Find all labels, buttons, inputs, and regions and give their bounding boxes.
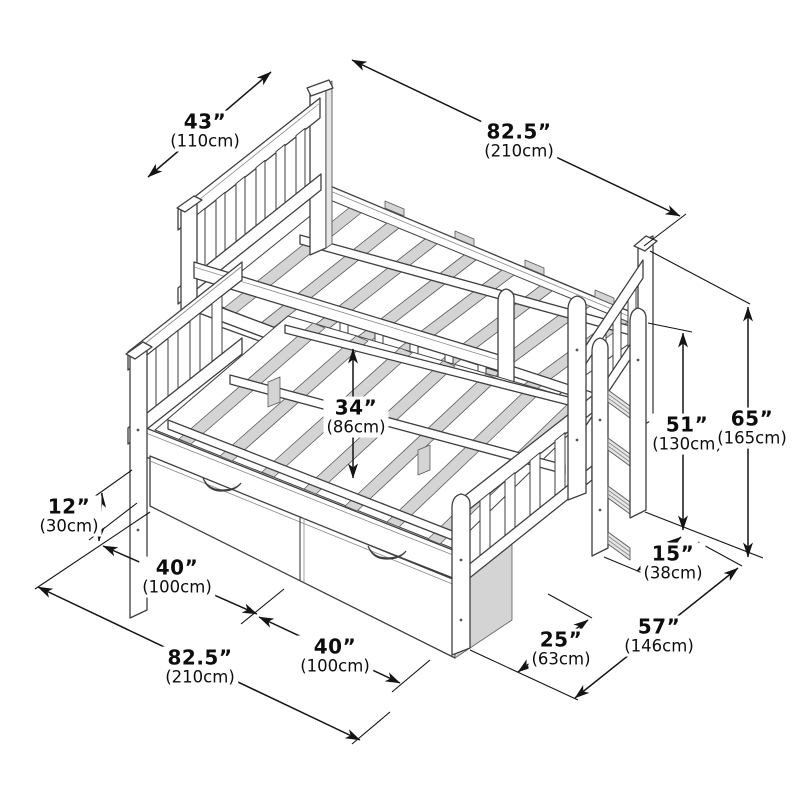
- dimension-value-cm: (38cm): [643, 565, 702, 583]
- dimension-value-cm: (210cm): [165, 669, 235, 687]
- bunk-bed-illustration: [0, 0, 800, 800]
- dimension-label-bunk-clearance: 34” (86cm): [323, 397, 388, 438]
- dimension-label-overall-width: 57” (146cm): [621, 616, 697, 657]
- dimension-value-inches: 57”: [624, 616, 694, 638]
- dimension-label-drawer-width-right: 40” (100cm): [297, 636, 373, 677]
- dimension-label-drawer-width-left: 40” (100cm): [139, 557, 215, 598]
- dimension-value-inches: 82.5”: [165, 647, 235, 669]
- dimension-value-inches: 40”: [142, 557, 212, 579]
- dimension-label-upper-bunk-width: 43” (110cm): [167, 111, 243, 152]
- dimension-value-cm: (100cm): [300, 658, 370, 676]
- dimension-value-inches: 15”: [643, 543, 702, 565]
- dimension-value-inches: 43”: [170, 111, 240, 133]
- dimension-label-overall-length: 82.5” (210cm): [162, 647, 238, 688]
- dimension-value-cm: (63cm): [531, 651, 590, 669]
- dimension-value-cm: (86cm): [326, 419, 385, 437]
- dimension-label-ladder-depth: 15” (38cm): [640, 543, 705, 584]
- dimension-value-inches: 34”: [326, 397, 385, 419]
- dimension-value-inches: 51”: [652, 414, 722, 436]
- dimension-label-overall-height: 65” (165cm): [714, 408, 790, 449]
- diagram-canvas: 43” (110cm) 82.5” (210cm) 34” (86cm) 51”…: [0, 0, 800, 800]
- upper-footboard-front-post: [568, 296, 586, 500]
- dimension-value-inches: 12”: [39, 496, 98, 518]
- dimension-value-cm: (110cm): [170, 133, 240, 151]
- dimension-value-inches: 82.5”: [484, 121, 554, 143]
- dimension-label-upper-bunk-length: 82.5” (210cm): [481, 121, 557, 162]
- dimension-label-ladder-footprint: 25” (63cm): [528, 629, 593, 670]
- ladder-treads: [608, 390, 630, 560]
- dimension-value-cm: (146cm): [624, 638, 694, 656]
- dimension-value-inches: 65”: [717, 408, 787, 430]
- dimension-value-inches: 40”: [300, 636, 370, 658]
- dimension-value-cm: (30cm): [39, 518, 98, 536]
- dimension-value-inches: 25”: [531, 629, 590, 651]
- dimension-value-cm: (210cm): [484, 143, 554, 161]
- dimension-value-cm: (165cm): [717, 430, 787, 448]
- dimension-value-cm: (100cm): [142, 579, 212, 597]
- dimension-label-drawer-height: 12” (30cm): [36, 496, 101, 537]
- dimension-value-cm: (130cm): [652, 436, 722, 454]
